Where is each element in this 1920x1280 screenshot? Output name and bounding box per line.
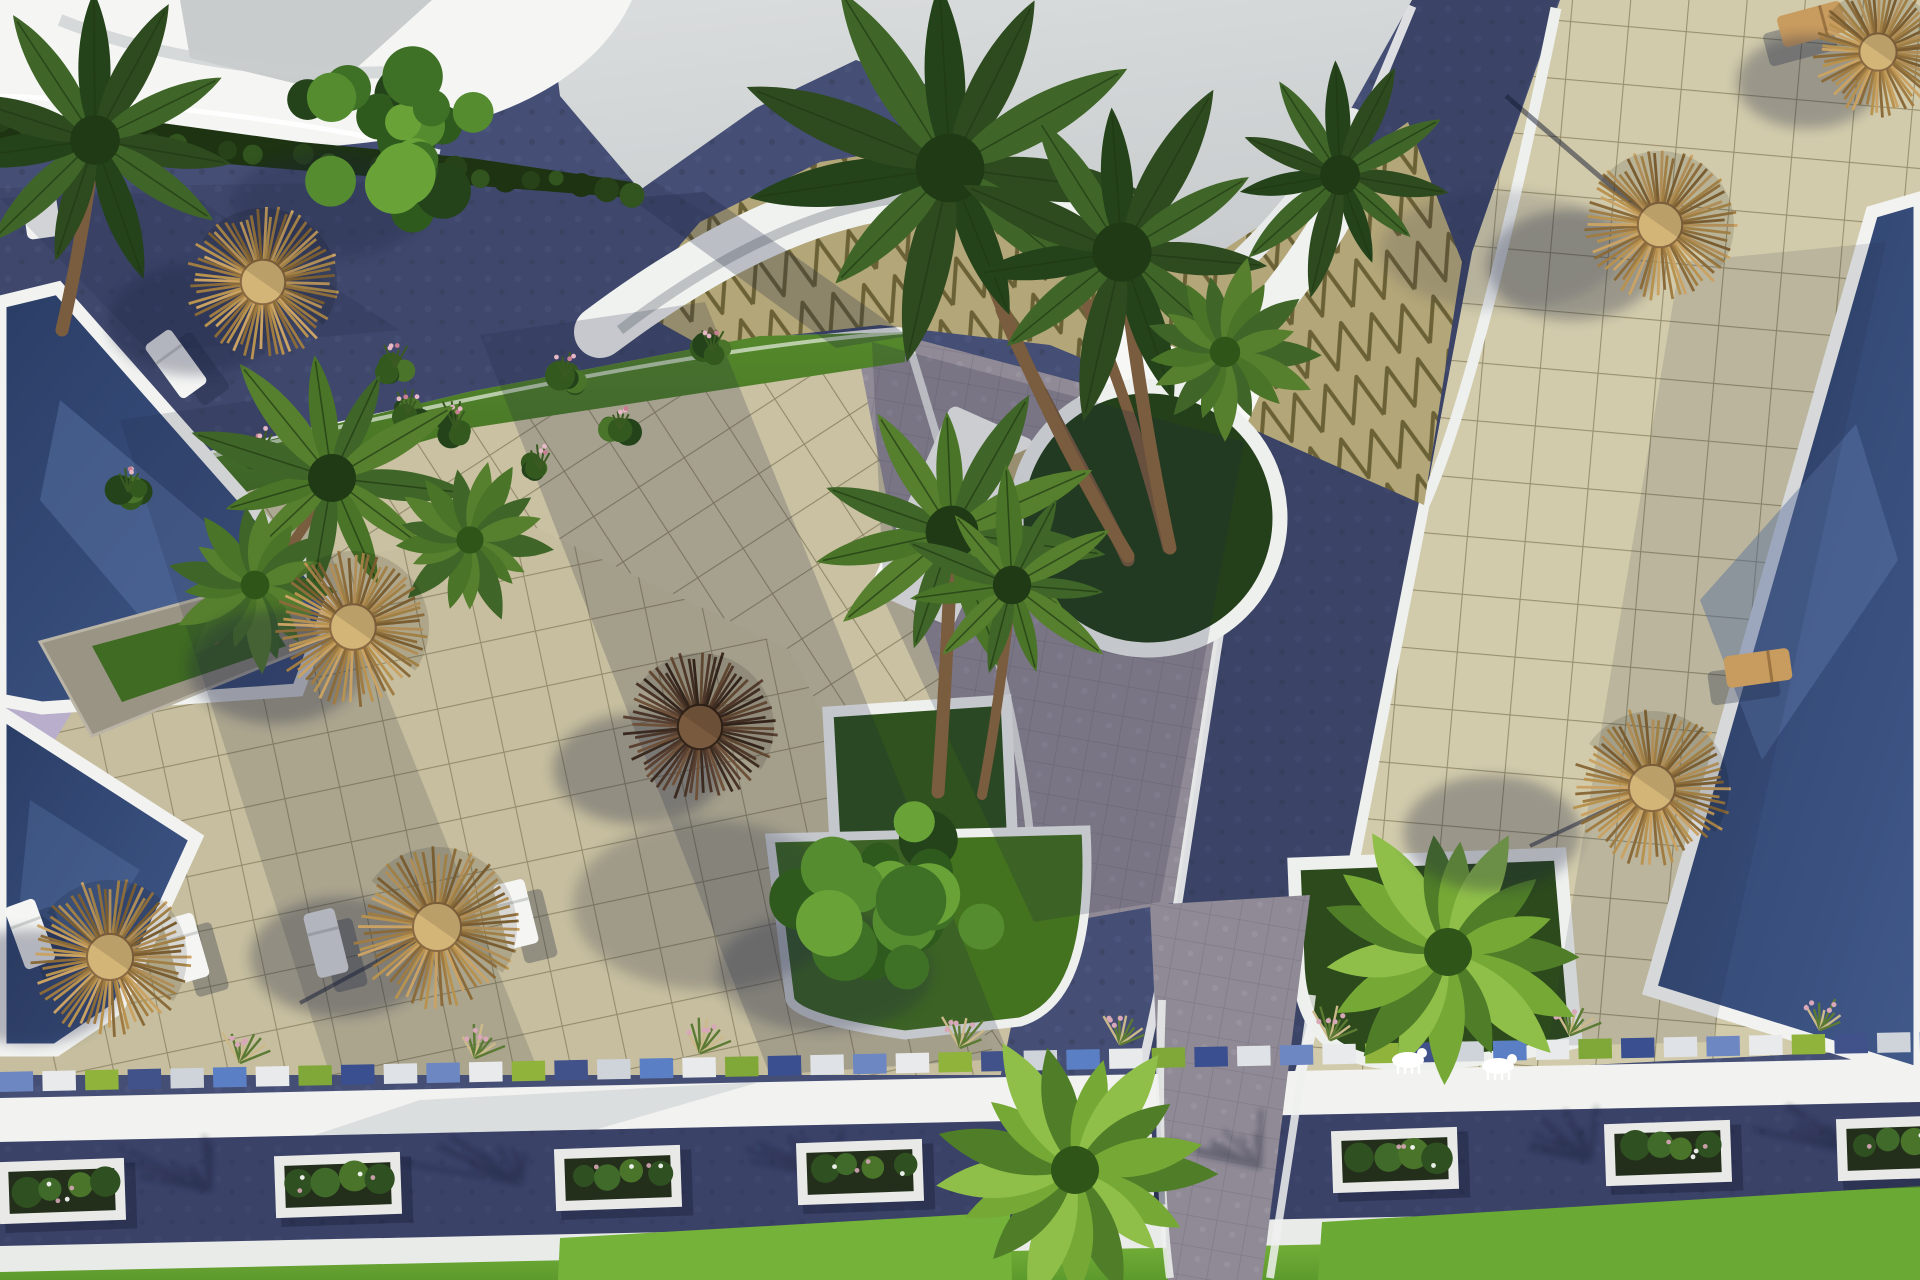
shrub-leaf <box>119 476 146 503</box>
sail-roof <box>0 0 632 150</box>
umbrella-straw <box>40 963 99 994</box>
planter-shrub <box>89 1166 120 1197</box>
planter-flower <box>594 1164 599 1169</box>
lounger-pad <box>1776 0 1848 48</box>
grass-blade <box>1330 1006 1337 1041</box>
grass-clump <box>942 1017 984 1048</box>
fan-frond <box>252 553 322 593</box>
planter-flower <box>47 1182 52 1187</box>
tree-foliage <box>907 862 950 905</box>
umbrella-straw <box>267 214 287 271</box>
umbrella-straw <box>1655 715 1669 776</box>
umbrella-hub <box>241 260 285 304</box>
umbrella-straw <box>81 968 105 1023</box>
umbrella-straw <box>1818 56 1869 77</box>
strip-block <box>853 1054 887 1075</box>
shrub-flower <box>128 467 133 472</box>
umbrella-straw <box>1888 52 1920 53</box>
grass-blade <box>1330 1026 1350 1041</box>
umbrella-straw <box>1638 714 1649 775</box>
statue-head <box>1417 1048 1427 1058</box>
umbrella-straw <box>1583 790 1640 801</box>
umbrella-shadow <box>188 610 363 724</box>
umbrella-straw <box>122 958 191 965</box>
umbrella-straw <box>265 294 277 355</box>
palm-frond <box>934 411 965 532</box>
umbrella-straw <box>35 954 97 957</box>
palm-trunk <box>982 585 1012 795</box>
fan-frond <box>1212 255 1261 356</box>
palm-frond <box>0 6 109 149</box>
animal-statue <box>1482 1054 1517 1080</box>
frond-spine <box>1006 470 1012 585</box>
umbrella-straw <box>120 907 172 949</box>
umbrella-straw <box>706 666 734 717</box>
umbrella-straw <box>268 211 293 272</box>
fan-frond <box>398 488 476 550</box>
tree-foliage <box>453 92 494 133</box>
planter-shrub <box>1876 1127 1901 1152</box>
shrub-stem <box>128 467 133 492</box>
hedge-bump <box>0 109 12 132</box>
umbrella-straw <box>1822 49 1868 51</box>
umbrella-straw <box>54 965 100 1001</box>
umbrella-straw <box>194 280 251 282</box>
umbrella-straw <box>680 653 697 715</box>
palm-frond <box>821 0 969 180</box>
palm-tree <box>956 80 1269 548</box>
umbrella-straw <box>1663 236 1680 294</box>
shrub-flower <box>539 448 544 453</box>
umbrella-straw <box>360 931 425 950</box>
strip-block <box>128 1069 162 1090</box>
umbrella-straw <box>1885 59 1920 100</box>
lounger-shadow <box>178 921 230 998</box>
grass-blade <box>1820 1010 1824 1030</box>
umbrella-straw <box>711 732 770 757</box>
umbrella-straw <box>1605 232 1651 269</box>
umbrella-straw <box>1581 794 1641 824</box>
left-terrace-lower <box>0 520 1005 1075</box>
shrub-flower <box>618 410 623 415</box>
grass-blade <box>691 1024 700 1054</box>
umbrella-straw <box>278 624 341 626</box>
sky <box>548 0 1412 332</box>
planter-flower <box>358 1172 363 1177</box>
fan-palm <box>395 459 556 624</box>
palm-frond <box>42 136 108 266</box>
umbrella-straw <box>447 935 496 978</box>
planter-shadow <box>279 1156 413 1227</box>
umbrella-straw <box>1586 774 1640 786</box>
right-terrace <box>1296 0 1920 1080</box>
fan-frond <box>1064 1159 1166 1261</box>
frond-spine <box>1245 175 1340 191</box>
umbrella-straw <box>1818 33 1869 49</box>
palm-frond <box>738 65 959 190</box>
frond-spine <box>950 168 1082 278</box>
umbrella-straw <box>283 629 341 639</box>
umbrella-straw <box>450 930 515 944</box>
fan-frond <box>1151 342 1230 395</box>
umbrella-straw <box>1603 174 1651 217</box>
umbrella-straw <box>1671 202 1722 221</box>
road-planter <box>1026 1133 1165 1209</box>
umbrella-straw <box>205 289 254 326</box>
umbrella-straw <box>712 728 778 735</box>
umbrella-straw <box>234 293 259 351</box>
shrub-stem <box>255 437 262 452</box>
palm-frond <box>86 127 222 233</box>
frond-spine <box>846 0 950 168</box>
umbrella-straw <box>117 893 153 947</box>
umbrella-straw <box>1607 171 1652 217</box>
umbrella-straw <box>195 287 252 315</box>
grass-flower <box>1326 1018 1331 1023</box>
fan-palm <box>1145 255 1322 442</box>
planter-shrub <box>1900 1127 1920 1155</box>
hedge-bump <box>471 169 490 188</box>
umbrella-straw <box>710 734 759 767</box>
hedge-bump <box>218 141 237 160</box>
umbrella-straw <box>1623 235 1653 280</box>
umbrella-straw <box>1629 710 1648 776</box>
umbrella-straw <box>666 663 694 716</box>
umbrella-straw <box>1594 230 1649 258</box>
umbrella-straw <box>1671 204 1731 222</box>
umbrella-straw <box>190 283 251 286</box>
grass-blade <box>240 1038 261 1063</box>
shrub-flower <box>129 470 134 475</box>
umbrella-straw <box>289 631 341 650</box>
umbrella-straw <box>365 627 423 629</box>
umbrella-straw <box>420 939 434 1000</box>
planter-flower <box>1694 1149 1699 1154</box>
white-pergola <box>21 184 62 240</box>
umbrella-straw <box>360 569 394 617</box>
umbrella-straw <box>1886 12 1920 46</box>
umbrella-straw <box>1627 722 1647 776</box>
grass-flower <box>1118 1016 1123 1021</box>
planter-shrub <box>861 1156 884 1179</box>
frond-spine <box>1340 122 1436 175</box>
umbrella-straw <box>273 289 317 321</box>
umbrella-shade-half <box>371 816 548 973</box>
umbrella-hub <box>87 934 133 980</box>
right-road-tint <box>1140 0 1558 1082</box>
umbrella-straw <box>52 906 101 949</box>
planter-shrub <box>11 1176 43 1208</box>
shrub-leaf <box>436 410 458 432</box>
lounger-pad <box>162 912 211 984</box>
umbrella-straw <box>264 294 270 356</box>
umbrella-straw <box>1584 226 1648 230</box>
umbrella-straw <box>1662 747 1714 781</box>
umbrella-straw <box>1661 732 1711 780</box>
umbrella-straw <box>291 582 343 619</box>
curb-right-road-right <box>1298 8 1556 1082</box>
umbrella-straw <box>703 738 719 795</box>
strip-block <box>170 1068 204 1089</box>
umbrella-straw <box>712 729 773 742</box>
shrub-stem <box>260 433 262 452</box>
upper-road <box>0 178 905 505</box>
thatch-umbrella <box>108 179 366 376</box>
umbrella-straw <box>437 855 438 915</box>
palm-frond <box>746 146 953 219</box>
umbrella-straw <box>209 233 255 274</box>
tree-foliage <box>860 842 899 881</box>
umbrella-straw <box>1888 47 1920 52</box>
frond-spine <box>1112 115 1122 252</box>
shrub-leaf <box>375 360 399 384</box>
palm-trunk <box>950 168 1128 556</box>
shrub-leaf <box>248 436 268 456</box>
umbrella-straw <box>705 663 730 716</box>
shrub-leaf <box>616 424 637 445</box>
umbrella-straw <box>636 683 690 720</box>
umbrella-straw <box>1836 58 1870 85</box>
thatch-umbrella <box>188 521 459 724</box>
frond-spine <box>913 544 1012 585</box>
umbrella-straw <box>685 739 698 797</box>
mini-planter-strip <box>0 1031 1920 1092</box>
umbrella-straw <box>377 885 427 920</box>
umbrella-shade-half <box>291 521 459 670</box>
fan-frond <box>440 537 479 611</box>
fan-frond <box>247 579 307 648</box>
statue-body <box>1482 1058 1514 1074</box>
strip-block <box>1450 1041 1484 1062</box>
umbrella-straw <box>1888 54 1920 65</box>
fan-frond <box>399 515 472 549</box>
umbrella-straw <box>707 674 736 717</box>
umbrella-shadow <box>1403 775 1580 891</box>
umbrella-straw <box>1882 0 1904 43</box>
center-palm-planter <box>828 700 1013 862</box>
umbrella-straw <box>387 864 429 917</box>
thatch-umbrella <box>1487 122 1763 321</box>
umbrella-straw <box>1661 797 1699 835</box>
palm-frond <box>298 476 346 603</box>
umbrella-straw <box>709 680 762 720</box>
umbrella-straw <box>666 673 694 717</box>
umbrella-straw <box>365 631 423 650</box>
fan-frond <box>1178 279 1235 357</box>
lounger-pad <box>302 907 349 979</box>
palm-frond <box>301 353 345 480</box>
strip-block <box>1322 1044 1356 1065</box>
umbrella-straw <box>100 969 108 1034</box>
frond-spine <box>1340 175 1371 258</box>
umbrella-straw <box>1654 153 1659 213</box>
umbrella-straw <box>1619 726 1646 777</box>
grass-flower <box>1556 1014 1561 1019</box>
umbrella-straw <box>411 859 432 915</box>
frond-spine <box>0 140 95 236</box>
fan-frond <box>1438 867 1547 965</box>
palm-frond <box>1238 164 1342 203</box>
umbrella-straw <box>634 699 689 723</box>
grass-blade <box>960 1039 981 1048</box>
umbrella-straw <box>122 961 185 982</box>
shrub-leaf <box>559 363 580 384</box>
umbrella-straw <box>66 904 102 948</box>
umbrella-straw <box>710 733 756 759</box>
frond-spine <box>315 361 332 478</box>
frond-spine <box>952 473 1085 532</box>
umbrella-straw <box>118 967 153 1012</box>
grass-blade <box>1820 999 1835 1030</box>
shrub-leaf <box>405 400 423 418</box>
umbrella-straw <box>1664 788 1731 789</box>
umbrella-straw <box>639 694 690 721</box>
umbrella-straw <box>1657 721 1682 777</box>
umbrella-straw <box>1828 31 1869 48</box>
grass-blade <box>475 1038 492 1058</box>
shrub-flower <box>714 330 719 335</box>
grass-blade <box>1320 1007 1330 1041</box>
umbrella-straw <box>1663 754 1717 782</box>
shrub-flower <box>624 406 629 411</box>
grass-clump <box>1554 1008 1602 1035</box>
umbrella-straw <box>448 933 508 969</box>
umbrella-straw <box>121 922 177 951</box>
fan-frond <box>1417 833 1464 954</box>
hedge-band <box>0 112 632 198</box>
building-white-rim-2 <box>1062 205 1340 480</box>
umbrella-straw <box>657 737 693 788</box>
shrub-stem <box>620 414 623 430</box>
umbrella-straw <box>1668 174 1712 217</box>
umbrella-straw <box>1653 800 1657 856</box>
umbrella-straw <box>702 654 710 715</box>
fan-frond <box>1216 279 1275 358</box>
frond-spine <box>1012 585 1099 592</box>
shrub <box>242 426 282 471</box>
shrub-leaf <box>242 448 264 470</box>
frond-spine <box>1340 175 1443 192</box>
strip-block <box>981 1051 1015 1072</box>
stone-planter <box>40 576 322 736</box>
sun-lounger <box>144 319 231 415</box>
shrub-leaf <box>393 359 415 381</box>
palm-frond <box>1106 246 1190 405</box>
fan-frond <box>460 540 480 610</box>
umbrella-straw <box>1649 800 1651 864</box>
umbrella-straw <box>1671 230 1730 258</box>
grass-blade <box>463 1037 475 1058</box>
curb-upper <box>0 332 905 505</box>
umbrella-straw <box>444 869 477 917</box>
palm-tree <box>813 387 1108 792</box>
palm-core <box>70 115 120 165</box>
frond-spine <box>1122 252 1260 265</box>
umbrella-straw <box>361 573 400 618</box>
umbrella-straw <box>1665 236 1693 292</box>
umbrella-straw <box>1822 46 1868 51</box>
tree-foliage <box>834 862 884 912</box>
frond-spine <box>1122 181 1243 252</box>
umbrella-shade-half <box>1827 0 1920 88</box>
palm-tree <box>187 353 472 640</box>
grass-blade <box>1119 1015 1120 1044</box>
shrub-stem <box>540 453 549 470</box>
palm-frond <box>950 515 1108 571</box>
umbrella-straw <box>119 902 167 949</box>
palm-trunk-2 <box>1072 272 1168 548</box>
shrub-stem <box>452 401 455 428</box>
road-tree-shadow <box>120 1135 211 1190</box>
fan-frond <box>248 527 325 593</box>
palm-trunk <box>938 532 952 792</box>
umbrella-straw <box>1660 727 1703 778</box>
hedge-bump <box>191 134 213 156</box>
planter-soil <box>8 1168 115 1214</box>
umbrella-straw <box>365 630 417 642</box>
umbrella-straw <box>330 563 349 615</box>
umbrella-straw <box>195 274 251 280</box>
shrub-stem <box>395 349 399 368</box>
umbrella-straw <box>632 732 690 759</box>
planter-shrub <box>1620 1129 1652 1161</box>
shrub-leaf <box>449 424 470 445</box>
shrub-leaf <box>713 340 731 358</box>
grass-blade <box>688 1033 700 1054</box>
palm-frond <box>996 239 1132 358</box>
fan-frond <box>410 532 474 572</box>
frond-spine <box>1312 175 1340 292</box>
palm-trunk <box>214 478 332 640</box>
tree-foliage <box>305 156 356 207</box>
leafy-tree <box>716 801 1004 1032</box>
palm-frond <box>944 520 1071 619</box>
umbrella-straw <box>38 939 98 954</box>
shrub-stem <box>125 468 128 492</box>
umbrella-straw <box>704 738 724 791</box>
umbrella-straw <box>117 967 148 1016</box>
fan-frond <box>1332 860 1459 967</box>
fan-frond <box>1165 345 1234 422</box>
umbrella-straw <box>1853 61 1874 110</box>
frond-spine <box>231 478 332 507</box>
fan-frond <box>1356 823 1465 963</box>
grass-blade <box>1313 1011 1330 1040</box>
hedge-bump <box>243 145 263 165</box>
umbrella-straw <box>339 551 351 615</box>
palm-trunk-1 <box>1002 310 1128 560</box>
palm-frond <box>979 582 1021 675</box>
umbrella-straw <box>196 284 251 292</box>
umbrella-straw <box>445 937 482 984</box>
umbrella-straw <box>439 854 447 914</box>
hedge-bump <box>394 157 415 178</box>
shrub-leaf <box>392 404 418 430</box>
frond-spine <box>332 410 447 478</box>
umbrella-straw <box>1576 764 1641 784</box>
umbrella-straw <box>644 734 690 765</box>
palm-frond <box>932 0 1053 177</box>
umbrella-straw <box>275 284 339 293</box>
umbrella-straw <box>1884 0 1916 44</box>
frond-spine <box>990 585 1012 669</box>
umbrella-straw <box>114 884 136 946</box>
palm-frond <box>1003 494 1066 589</box>
planter-soil <box>806 1149 913 1195</box>
tree-foliage <box>377 109 436 168</box>
frond-spine <box>1042 125 1122 252</box>
circular-planter-bowl <box>1016 386 1280 650</box>
